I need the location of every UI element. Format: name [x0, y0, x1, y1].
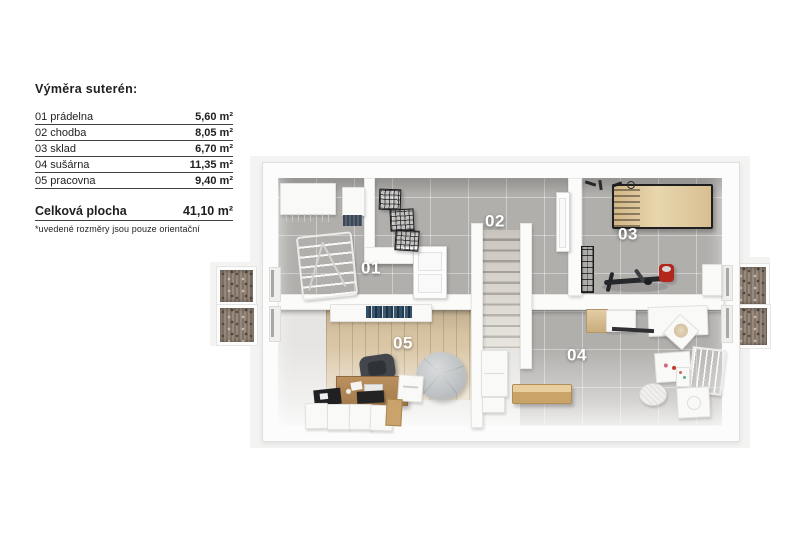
cabinet-divider: [484, 373, 504, 374]
wire-cube-shelf: [394, 229, 419, 252]
legend-total: Celková plocha 41,10 m²: [35, 205, 233, 221]
door-panel: [418, 274, 442, 293]
door-panel: [559, 198, 566, 248]
room-area-label: 03 sklad: [35, 143, 76, 155]
wall-alcove-vertical: [364, 178, 375, 252]
bicycle-saddle: [644, 279, 652, 285]
red-bucket: [659, 264, 674, 282]
laundry-basket: [639, 383, 667, 406]
wooden-drawer-end: [385, 399, 402, 427]
room-label-03: 03: [618, 226, 638, 243]
wall-tool: [627, 181, 635, 189]
chair-seat: [367, 360, 387, 376]
bottle-shelf: [676, 367, 690, 387]
drawer-unit: [305, 403, 328, 429]
legend-rows: 01 prádelna 5,60 m² 02 chodba 8,05 m² 03…: [35, 111, 233, 189]
legend-row: 04 sušárna 11,35 m²: [35, 159, 233, 173]
legend-row: 05 pracovna 9,40 m²: [35, 175, 233, 189]
laundry-cabinet: [280, 183, 336, 215]
room-area-value: 5,60 m²: [195, 111, 233, 123]
window-glass-slot: [271, 270, 274, 297]
printer-slot: [403, 385, 418, 388]
room-area-value: 9,40 m²: [195, 175, 233, 187]
washer-door: [687, 396, 702, 411]
wooden-bench: [512, 384, 572, 404]
stairs: [480, 230, 522, 348]
wire-cube-shelf: [379, 189, 402, 211]
bucket-lid: [662, 266, 671, 272]
wardrobe: [342, 187, 365, 216]
legend-row: 03 sklad 6,70 m²: [35, 143, 233, 157]
door-panel: [418, 252, 442, 271]
wall-stair-right: [520, 223, 532, 369]
legend-row: 01 prádelna 5,60 m²: [35, 111, 233, 125]
window-glass-slot: [271, 309, 274, 337]
stool-seat: [671, 321, 691, 341]
drawer-unit: [327, 404, 350, 430]
room-area-label: 05 pracovna: [35, 175, 96, 187]
paper-sheet: [350, 381, 362, 391]
rack-leg: [308, 242, 324, 291]
door-laundry: [413, 246, 447, 299]
window-glass-slot: [726, 268, 729, 296]
wall-niche: [702, 264, 722, 296]
shelf-items: [343, 215, 362, 226]
room-label-04: 04: [567, 347, 587, 364]
total-label: Celková plocha: [35, 205, 127, 218]
total-value: 41,10 m²: [183, 205, 233, 218]
room-area-value: 6,70 m²: [195, 143, 233, 155]
wooden-wall-box: [586, 309, 608, 333]
room-label-05: 05: [393, 335, 413, 352]
rack-leg: [321, 242, 346, 287]
window-glass-slot: [726, 308, 729, 338]
room-label-01: 01: [361, 260, 381, 277]
door-storage: [556, 192, 570, 252]
legend-footnote: *uvedené rozměry jsou pouze orientační: [35, 224, 233, 234]
legend-row: 02 chodba 8,05 m²: [35, 127, 233, 141]
books: [366, 306, 412, 318]
room-area-label: 01 prádelna: [35, 111, 93, 123]
window-well-left-2: [217, 305, 257, 345]
loft-ladder-slats: [614, 186, 640, 227]
small-storage-box: [482, 397, 505, 413]
under-stairs-cabinet: [481, 350, 508, 397]
hanging-rail: [286, 214, 330, 222]
wire-cube-shelf: [389, 208, 414, 231]
paper-on-mat: [320, 393, 329, 400]
bottle-dot: [683, 376, 686, 379]
bottle-dot: [679, 371, 682, 374]
area-legend: Výměra suterén: 01 prádelna 5,60 m² 02 c…: [35, 82, 233, 234]
drying-rack: [296, 231, 358, 301]
window-well-left-1: [217, 267, 256, 305]
legend-title: Výměra suterén:: [35, 82, 233, 96]
mug: [346, 389, 351, 394]
detergent-dot: [664, 363, 668, 367]
wire-rack: [581, 246, 594, 293]
loft-storage-shelf: [612, 184, 713, 229]
room-area-label: 04 sušárna: [35, 159, 89, 171]
washing-machine: [676, 386, 711, 419]
room-area-value: 8,05 m²: [195, 127, 233, 139]
wall-hall-storage: [568, 178, 582, 296]
laptop: [357, 390, 385, 403]
room-area-value: 11,35 m²: [190, 159, 233, 171]
room-area-label: 02 chodba: [35, 127, 86, 139]
room-label-02: 02: [485, 213, 505, 230]
floor-plan-page: Výměra suterén: 01 prádelna 5,60 m² 02 c…: [0, 0, 800, 534]
